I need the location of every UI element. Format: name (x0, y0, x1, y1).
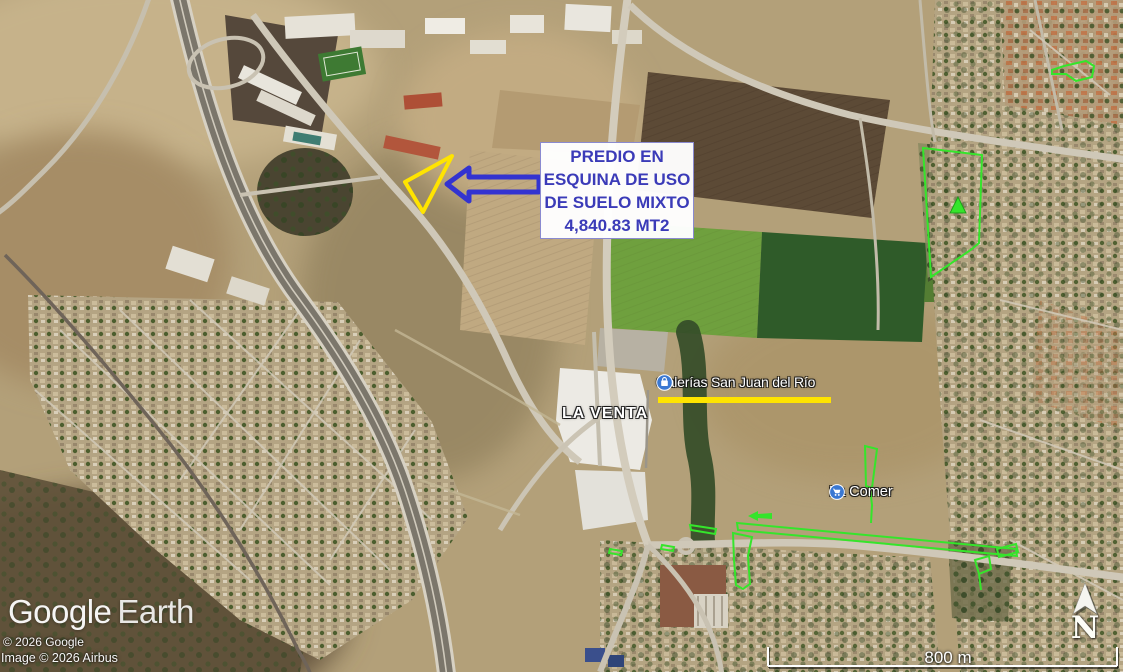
logo-earth: Earth (117, 593, 193, 630)
place-label-text: LA VENTA (562, 405, 648, 423)
info-box-line: ESQUINA DE USO (541, 168, 693, 191)
copyright-google: © 2026 Google (3, 635, 84, 649)
north-label: N (1068, 610, 1102, 646)
satellite-map-viewport[interactable]: PREDIO EN ESQUINA DE USO DE SUELO MIXTO … (0, 0, 1123, 672)
place-label-la-venta: LA VENTA (562, 405, 648, 423)
green-placemark-triangle-icon (950, 197, 966, 213)
copyright-airbus: Image © 2026 Airbus (1, 651, 118, 665)
annotation-overlay (0, 0, 1123, 672)
green-area-outlines (609, 61, 1094, 590)
parcel-info-box: PREDIO EN ESQUINA DE USO DE SUELO MIXTO … (540, 142, 694, 239)
info-box-line: 4,840.83 MT2 (541, 214, 693, 237)
place-label-la-comer: La Comer (829, 484, 893, 500)
scale-bar-label: 800 m (908, 648, 988, 668)
google-earth-logo: GoogleEarth (8, 593, 194, 631)
place-label-text: Galerías San Juan del Río (656, 374, 815, 390)
label-highlight-underline (658, 397, 831, 403)
info-box-line: PREDIO EN (541, 145, 693, 168)
logo-google: Google (8, 593, 111, 630)
green-arrow-marker-icon (748, 511, 772, 521)
info-box-line: DE SUELO MIXTO (541, 191, 693, 214)
shopping-bag-icon (656, 374, 673, 391)
callout-arrow-icon (447, 168, 539, 201)
place-label-galerias: Galerías San Juan del Río (656, 374, 815, 390)
shopping-cart-icon (829, 484, 845, 500)
